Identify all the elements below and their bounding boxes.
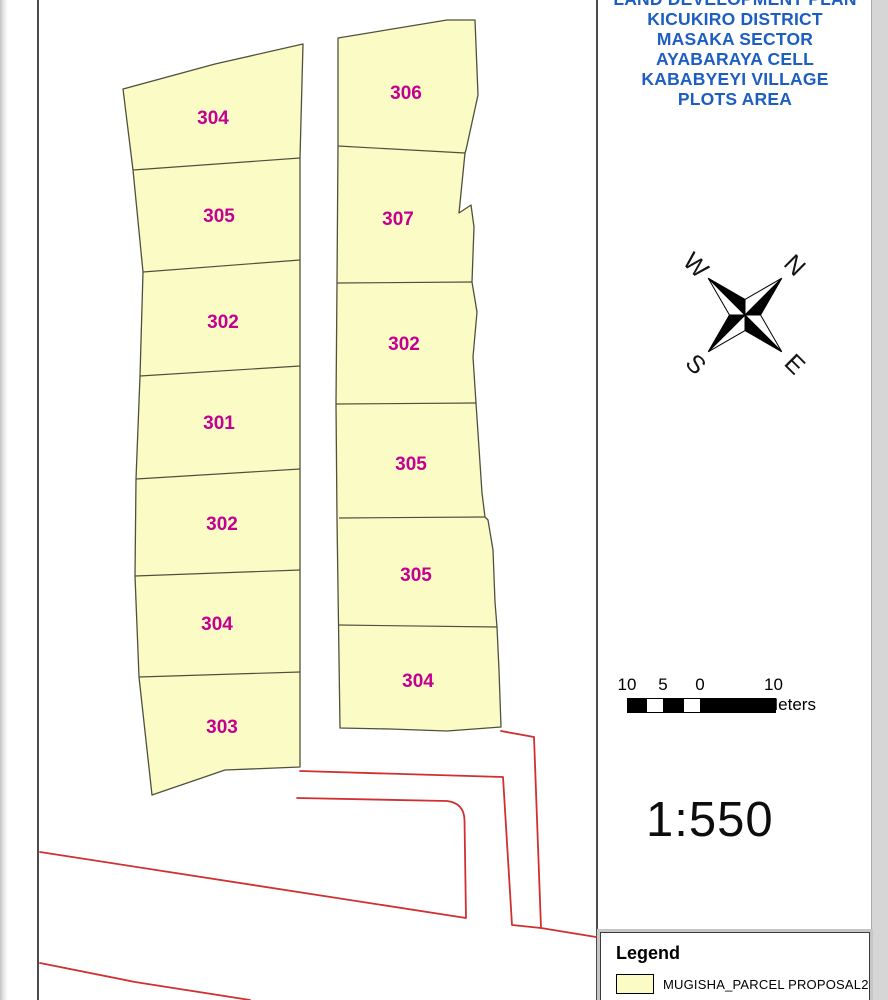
title-line: LAND DEVELOPMENT PLAN bbox=[598, 0, 872, 9]
compass-letter-south: S bbox=[680, 349, 712, 381]
title-line: KABABYEYI VILLAGE bbox=[598, 69, 872, 89]
scale-tick-label: 5 bbox=[658, 675, 667, 695]
compass-rose-icon: N E S W bbox=[665, 235, 825, 395]
road-line bbox=[300, 771, 596, 937]
title-line: AYABARAYA CELL bbox=[598, 49, 872, 69]
legend-item-label: MUGISHA_PARCEL PROPOSAL2 bbox=[663, 977, 869, 992]
title-block: LAND DEVELOPMENT PLAN KICUKIRO DISTRICT … bbox=[598, 0, 872, 109]
scale-segment bbox=[646, 699, 664, 712]
scale-tick-label: 0 bbox=[695, 675, 704, 695]
scale-segment bbox=[701, 699, 775, 712]
legend-swatch bbox=[616, 974, 654, 994]
plot-label: 304 bbox=[201, 614, 233, 635]
plot-label: 302 bbox=[388, 334, 420, 355]
plot-label: 301 bbox=[203, 413, 235, 434]
plot-label: 303 bbox=[206, 717, 238, 738]
scale-tick-label: 10 bbox=[618, 675, 637, 695]
legend-box: Legend MUGISHA_PARCEL PROPOSAL2 bbox=[600, 932, 870, 1000]
road-line bbox=[40, 963, 250, 1000]
plot-label: 305 bbox=[203, 206, 235, 227]
plot-label: 305 bbox=[400, 565, 432, 586]
legend-item: MUGISHA_PARCEL PROPOSAL2 bbox=[616, 974, 869, 994]
plot-label: 306 bbox=[390, 83, 422, 104]
parcel-block-east: 306 307 302 305 305 304 bbox=[336, 20, 501, 731]
scale-segment bbox=[664, 699, 683, 712]
map-canvas: 304 305 302 301 302 304 303 306 307 302 … bbox=[0, 0, 888, 1000]
scale-bar-segments bbox=[627, 698, 776, 713]
compass-letter-north: N bbox=[778, 249, 811, 282]
road-lines bbox=[40, 731, 596, 1000]
plot-label: 307 bbox=[382, 209, 414, 230]
compass-letter-east: E bbox=[779, 349, 811, 381]
plot-label: 302 bbox=[207, 312, 239, 333]
plot-label: 304 bbox=[197, 108, 229, 129]
title-line: KICUKIRO DISTRICT bbox=[598, 9, 872, 29]
scale-ratio-text: 1:550 bbox=[646, 792, 774, 848]
scale-segment bbox=[628, 699, 646, 712]
title-line: MASAKA SECTOR bbox=[598, 29, 872, 49]
plot-label: 304 bbox=[402, 671, 434, 692]
scale-segment bbox=[683, 699, 701, 712]
title-line: PLOTS AREA bbox=[598, 89, 872, 109]
legend-title: Legend bbox=[616, 943, 680, 964]
plan-page: 304 305 302 301 302 304 303 306 307 302 … bbox=[0, 0, 888, 1000]
parcel-block-east-outline bbox=[336, 20, 501, 731]
road-line bbox=[40, 798, 466, 918]
plot-label: 305 bbox=[395, 454, 427, 475]
plot-label: 302 bbox=[206, 514, 238, 535]
parcel-block-west: 304 305 302 301 302 304 303 bbox=[123, 44, 303, 795]
